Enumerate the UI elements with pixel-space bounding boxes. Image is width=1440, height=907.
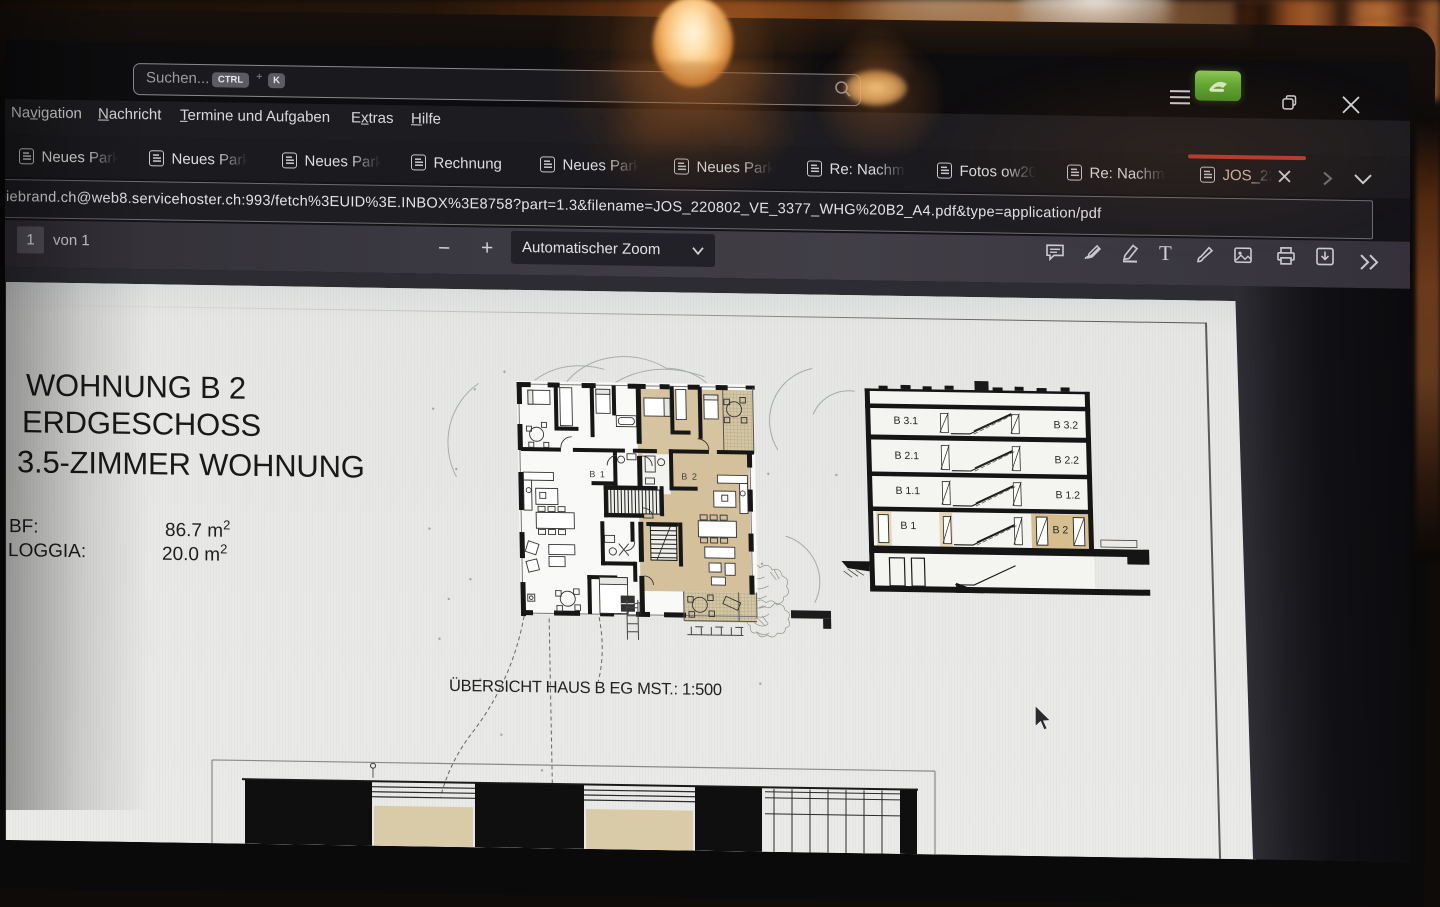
- svg-text:B 3.1: B 3.1: [893, 415, 918, 427]
- svg-text:B 1.2: B 1.2: [1055, 489, 1080, 501]
- svg-text:B 1.1: B 1.1: [895, 485, 920, 497]
- svg-text:B 1: B 1: [589, 469, 606, 479]
- svg-text:B 2.2: B 2.2: [1054, 454, 1079, 466]
- svg-text:B 1: B 1: [900, 520, 916, 532]
- svg-text:B 2.1: B 2.1: [894, 450, 919, 462]
- svg-text:B 3.2: B 3.2: [1053, 419, 1078, 431]
- svg-text:B 2: B 2: [681, 472, 698, 482]
- svg-text:B 2: B 2: [1052, 524, 1068, 536]
